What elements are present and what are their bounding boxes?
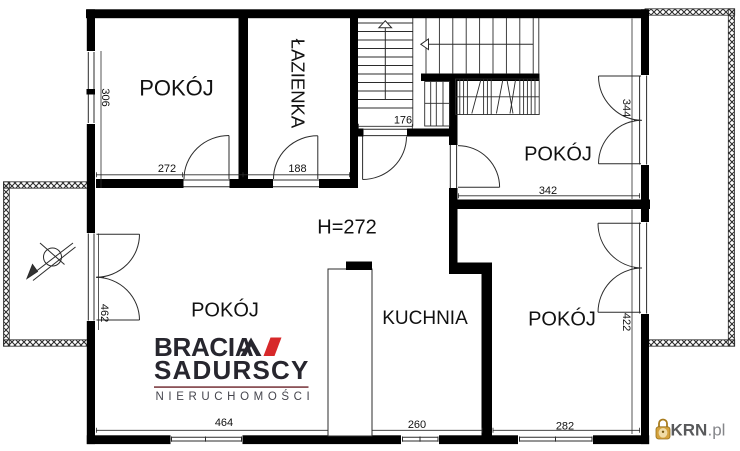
svg-text:ŁAZIENKA: ŁAZIENKA [288,39,309,129]
svg-text:462: 462 [98,304,110,322]
svg-text:POKÓJ: POKÓJ [191,299,259,322]
svg-text:.pl: .pl [708,421,726,440]
svg-text:POKÓJ: POKÓJ [528,308,596,331]
svg-text:422: 422 [620,313,632,331]
svg-text:KUCHNIA: KUCHNIA [382,308,468,329]
svg-text:260: 260 [408,419,426,431]
svg-text:188: 188 [288,163,306,175]
svg-text:342: 342 [539,185,557,197]
svg-text:SADURSCY: SADURSCY [154,355,310,385]
svg-text:KRN: KRN [671,421,708,440]
svg-text:NIERUCHOMOŚCI: NIERUCHOMOŚCI [156,390,315,403]
svg-text:POKÓJ: POKÓJ [524,142,592,165]
svg-text:POKÓJ: POKÓJ [139,76,214,101]
svg-text:H=272: H=272 [317,216,377,238]
svg-text:344: 344 [620,99,632,117]
svg-text:306: 306 [99,88,111,106]
svg-text:464: 464 [215,417,233,429]
svg-text:176: 176 [394,115,412,127]
svg-text:272: 272 [158,163,176,175]
svg-text:282: 282 [556,421,574,433]
